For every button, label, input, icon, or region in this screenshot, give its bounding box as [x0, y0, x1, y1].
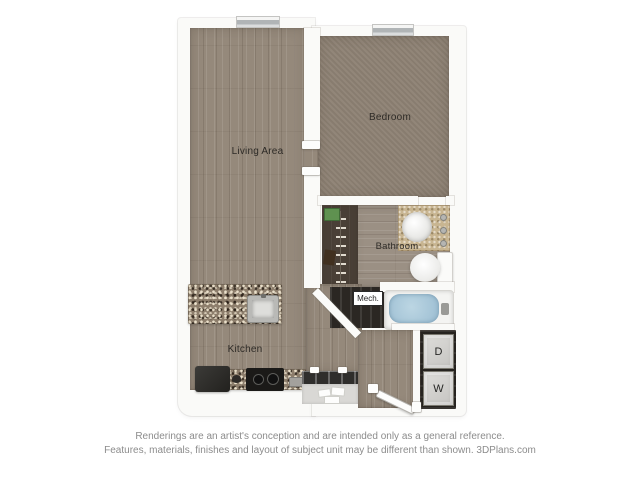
counter-item	[232, 375, 241, 383]
door-frame	[310, 367, 319, 373]
bedroom-window	[372, 24, 414, 36]
dryer: D	[423, 334, 454, 369]
wall	[413, 330, 420, 408]
label-kitchen: Kitchen	[200, 344, 290, 355]
toilet-bowl	[410, 253, 440, 282]
balcony-furniture	[324, 396, 340, 404]
label-bedroom: Bedroom	[345, 112, 435, 123]
door-frame	[412, 402, 421, 412]
label-living-area: Living Area	[210, 146, 305, 157]
stove	[246, 368, 284, 391]
wall	[304, 168, 320, 288]
closet-item	[323, 249, 336, 265]
island-sink-basin	[252, 300, 274, 318]
bathtub-water	[389, 294, 439, 323]
mech-label-box: Mech.	[353, 291, 383, 306]
storage-bin	[324, 208, 340, 221]
label-bathroom: Bathroom	[352, 241, 442, 252]
wall	[446, 196, 454, 205]
mech-label: Mech.	[357, 294, 379, 303]
washer: W	[423, 371, 454, 406]
floorplan-image: Mech. D W Living Area Bedroom Bathroom	[0, 0, 640, 480]
washer-label: W	[433, 383, 443, 395]
closet-hanger-rail	[336, 211, 346, 283]
wall	[318, 196, 418, 205]
dryer-label: D	[435, 346, 443, 358]
wall	[392, 324, 454, 330]
island-faucet-icon	[261, 294, 266, 298]
door-frame	[302, 167, 320, 175]
burner-icon	[253, 374, 264, 385]
disclaimer-line-2: Features, materials, finishes and layout…	[0, 445, 640, 456]
bathtub-faucet-icon	[441, 303, 449, 315]
refrigerator	[195, 366, 230, 392]
faucet-icon	[440, 227, 447, 234]
living-window	[236, 16, 280, 28]
door-frame	[368, 384, 378, 393]
disclaimer-line-1: Renderings are an artist's conception an…	[0, 431, 640, 442]
wall	[304, 28, 320, 148]
faucet-icon	[440, 214, 447, 221]
vanity-sink	[402, 212, 432, 242]
room-living-kitchen-floor	[190, 28, 306, 390]
burner-icon	[267, 373, 279, 385]
door-frame	[338, 367, 347, 373]
